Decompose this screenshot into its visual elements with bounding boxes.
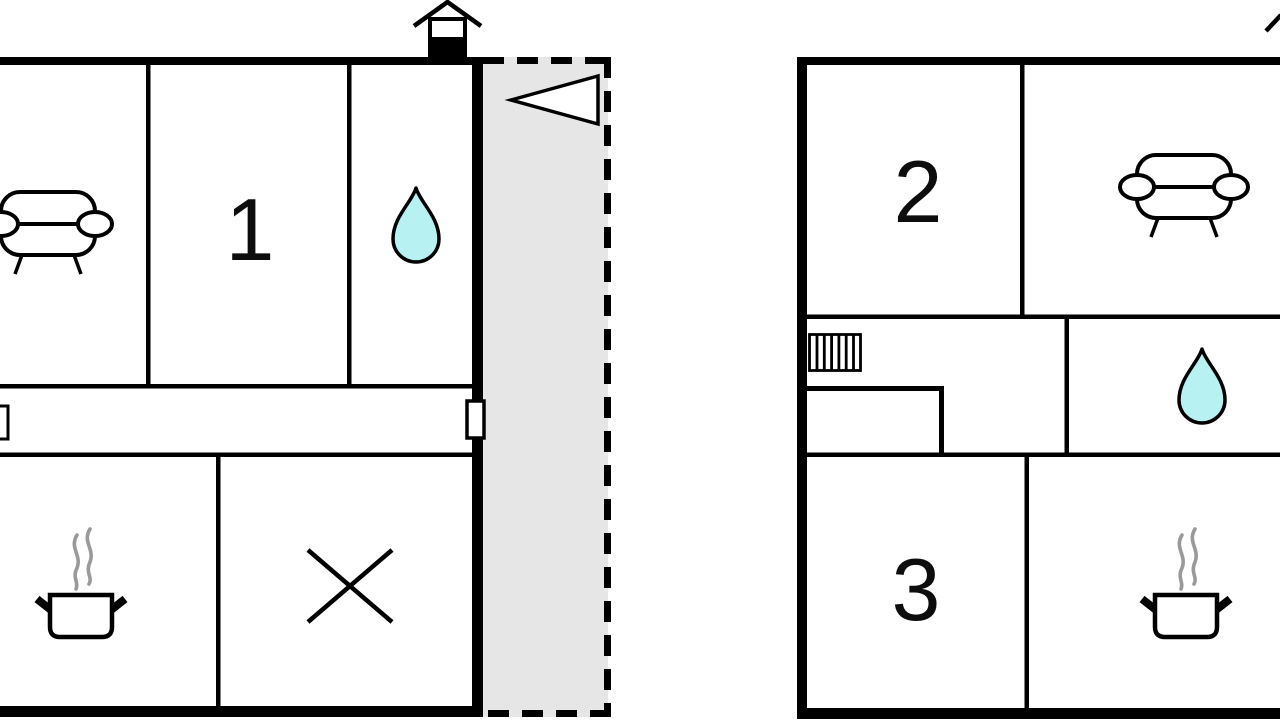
- wall-segment: [797, 57, 1280, 65]
- house-body-filled-half: [428, 37, 467, 56]
- pot-body: [50, 595, 112, 637]
- wall-segment: [1025, 457, 1030, 708]
- wall-segment: [1020, 65, 1025, 315]
- wall-segment: [472, 57, 483, 717]
- sofa-leg: [1210, 218, 1217, 237]
- stairs-icon: [810, 335, 861, 371]
- room-3-label: 3: [892, 540, 941, 639]
- steam-line: [1192, 529, 1196, 584]
- steam-line: [1179, 535, 1183, 589]
- pot-body: [1155, 595, 1217, 637]
- chimney-house-icon: [414, 2, 481, 56]
- wall-segment: [807, 453, 1280, 458]
- sofa-icon: [0, 192, 112, 274]
- room-2-label: 2: [894, 142, 943, 241]
- floor-plan: 1: [0, 0, 1280, 720]
- cooking-pot-icon: [1142, 529, 1230, 637]
- wall-segment: [0, 453, 472, 458]
- wall-segment: [0, 57, 483, 65]
- steam-line: [74, 535, 78, 589]
- terrace-area: [483, 57, 608, 717]
- hallway-door-right: [467, 401, 484, 438]
- wall-segment: [216, 457, 221, 706]
- hallway-door-left: [0, 406, 8, 439]
- water-drop-shape: [1179, 349, 1225, 423]
- sofa-leg: [1151, 218, 1158, 237]
- left-unit: 1: [0, 57, 484, 717]
- floor-plan-page: 1: [0, 0, 1280, 720]
- room-1-label: 1: [226, 180, 275, 279]
- wall-segment: [807, 315, 1280, 320]
- wall-segment: [0, 384, 472, 389]
- sofa-leg: [74, 255, 81, 274]
- right-unit: 2 3: [797, 57, 1280, 719]
- x-mark-icon: [308, 550, 392, 622]
- sofa-armrest: [78, 212, 112, 236]
- wall-segment: [797, 708, 1280, 719]
- wall-segment: [146, 65, 151, 386]
- north-arrow-fragment: [1266, 15, 1280, 31]
- wall-segment: [347, 65, 352, 386]
- sofa-armrest: [1120, 175, 1154, 199]
- sofa-armrest: [1214, 175, 1248, 199]
- water-drop-shape: [393, 188, 439, 262]
- wall-segment: [797, 57, 807, 719]
- steam-line: [87, 529, 91, 584]
- wall-segment: [0, 706, 483, 717]
- water-drop-icon: [393, 188, 439, 262]
- closet-partition: [807, 389, 942, 454]
- sofa-armrest: [0, 212, 18, 236]
- sofa-icon: [1120, 155, 1248, 237]
- cooking-pot-icon: [37, 529, 125, 637]
- wall-segment: [1065, 319, 1070, 453]
- water-drop-icon: [1179, 349, 1225, 423]
- terrace: [483, 57, 611, 717]
- sofa-leg: [15, 255, 22, 274]
